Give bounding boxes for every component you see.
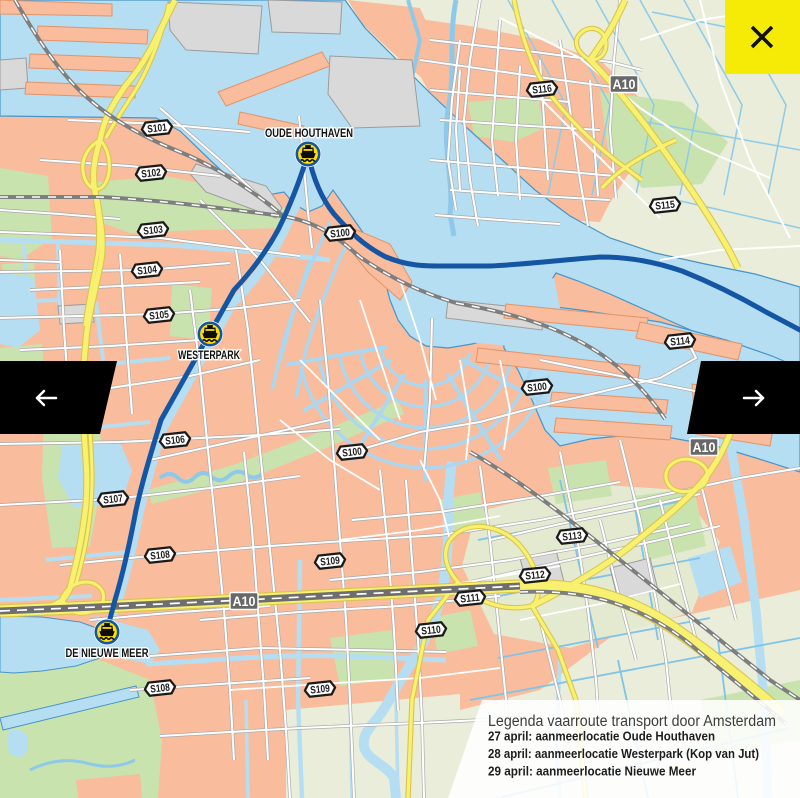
svg-text:Legenda vaarroute transport do: Legenda vaarroute transport door Amsterd… [488,713,776,730]
svg-text:S100: S100 [527,381,548,395]
svg-text:S105: S105 [149,309,170,323]
svg-text:S112: S112 [525,569,546,583]
svg-text:OUDE HOUTHAVEN: OUDE HOUTHAVEN [265,126,353,140]
svg-text:S107: S107 [103,493,124,507]
svg-text:S115: S115 [655,199,676,213]
svg-text:S109: S109 [320,555,341,569]
svg-text:S101: S101 [147,122,168,136]
svg-text:S110: S110 [421,624,442,638]
svg-text:A10: A10 [233,594,256,609]
svg-text:S103: S103 [143,224,164,238]
svg-text:S109: S109 [310,683,331,697]
svg-text:29 april: aanmeerlocatie Nieuw: 29 april: aanmeerlocatie Nieuwe Meer [488,765,696,779]
svg-text:S111: S111 [460,592,481,606]
svg-text:S108: S108 [150,682,171,696]
svg-text:S114: S114 [670,335,691,349]
svg-text:A10: A10 [613,77,636,92]
svg-text:S102: S102 [141,167,162,181]
svg-text:S108: S108 [150,549,171,563]
svg-text:28 april: aanmeerlocatie Weste: 28 april: aanmeerlocatie Westerpark (Kop… [488,747,759,761]
svg-text:S100: S100 [330,227,351,241]
svg-text:S100: S100 [342,446,363,460]
svg-text:S113: S113 [562,530,583,544]
svg-text:S106: S106 [165,434,186,448]
svg-text:DE NIEUWE MEER: DE NIEUWE MEER [66,646,149,660]
svg-text:S116: S116 [532,83,553,97]
svg-text:A10: A10 [693,440,716,455]
svg-text:S104: S104 [137,264,158,278]
svg-text:27 april: aanmeerlocatie Oude: 27 april: aanmeerlocatie Oude Houthaven [488,730,715,744]
svg-text:WESTERPARK: WESTERPARK [178,348,240,362]
